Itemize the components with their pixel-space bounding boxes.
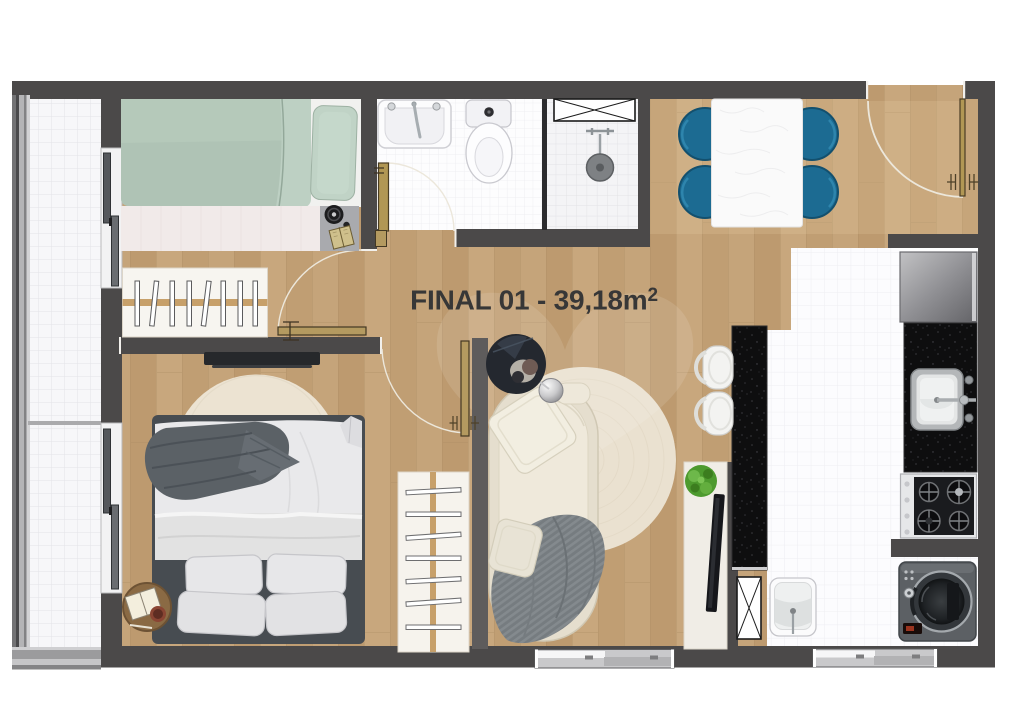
- svg-text:FINAL 01 - 39,18m2: FINAL 01 - 39,18m2: [410, 285, 658, 316]
